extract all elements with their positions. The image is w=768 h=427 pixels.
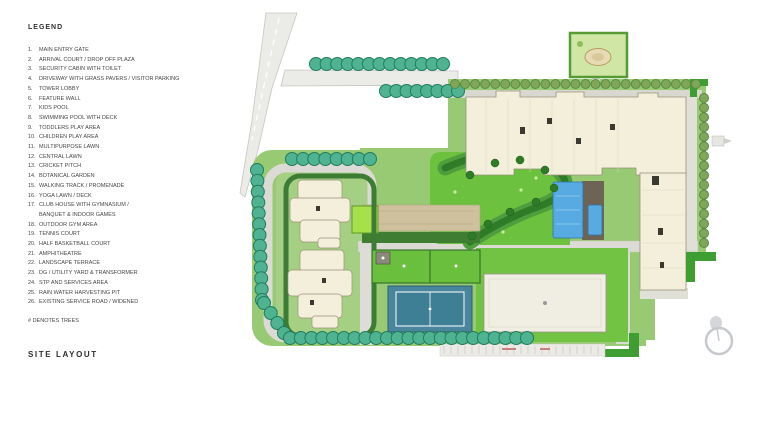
- hedge-strip: [362, 232, 480, 243]
- pool-area: [553, 181, 604, 240]
- site-layout-sheet: LEGEND 1.MAIN ENTRY GATE2.ARRIVAL COURT …: [0, 0, 768, 427]
- side-gate-marker: [712, 136, 732, 146]
- site-plan: [0, 0, 768, 427]
- deck-path: [362, 205, 480, 231]
- sports-zone: [372, 248, 628, 342]
- kids-pool: [588, 205, 602, 235]
- parking-strip: [440, 344, 605, 356]
- tennis-court: [388, 286, 472, 332]
- north-arrow: [706, 316, 732, 354]
- club-house: [484, 274, 606, 332]
- utility-plot: [570, 33, 627, 82]
